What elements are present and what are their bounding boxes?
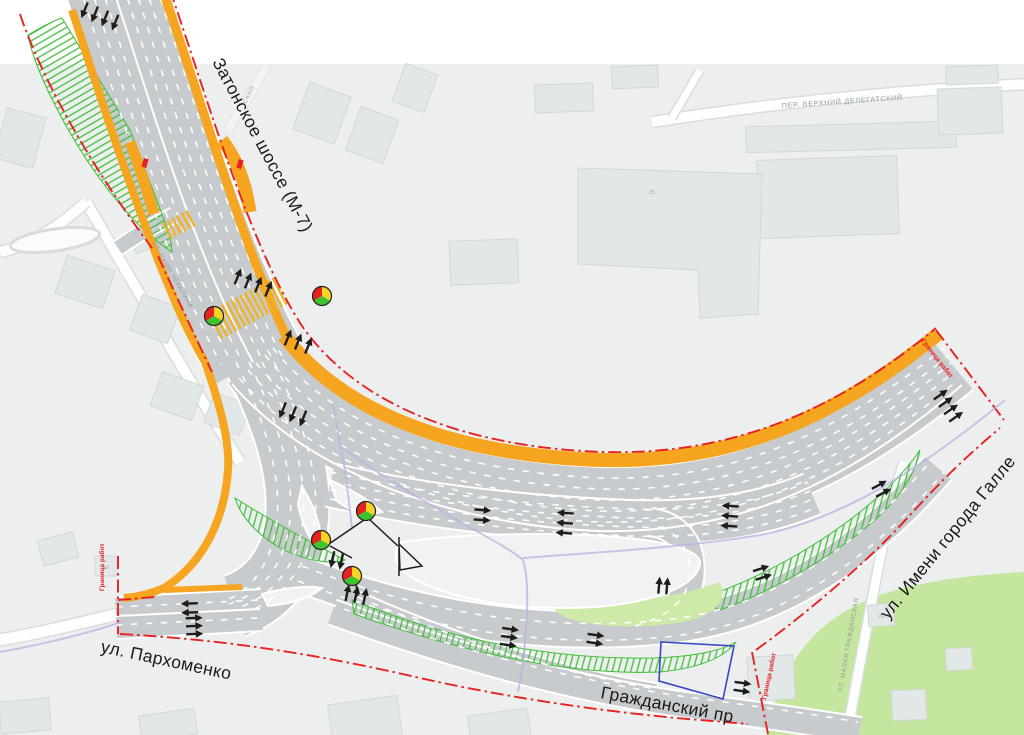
- traffic-scheme-map[interactable]: ПЕР. ВЕРХНИЙ ДЕЛЕГАТСКИЙ УЛ. САШИ ЧЕКАЛИ…: [0, 0, 1024, 735]
- building-number: 25: [649, 190, 655, 196]
- traffic-light-icon: [204, 307, 223, 326]
- traffic-scheme-page: ПЕР. ВЕРХНИЙ ДЕЛЕГАТСКИЙ УЛ. САШИ ЧЕКАЛИ…: [0, 0, 1024, 735]
- boundary-label: Граница работ: [98, 543, 106, 591]
- traffic-light-icon: [356, 502, 375, 521]
- traffic-light-icon: [342, 567, 361, 586]
- traffic-light-icon: [312, 287, 331, 306]
- traffic-light-icon: [311, 531, 330, 550]
